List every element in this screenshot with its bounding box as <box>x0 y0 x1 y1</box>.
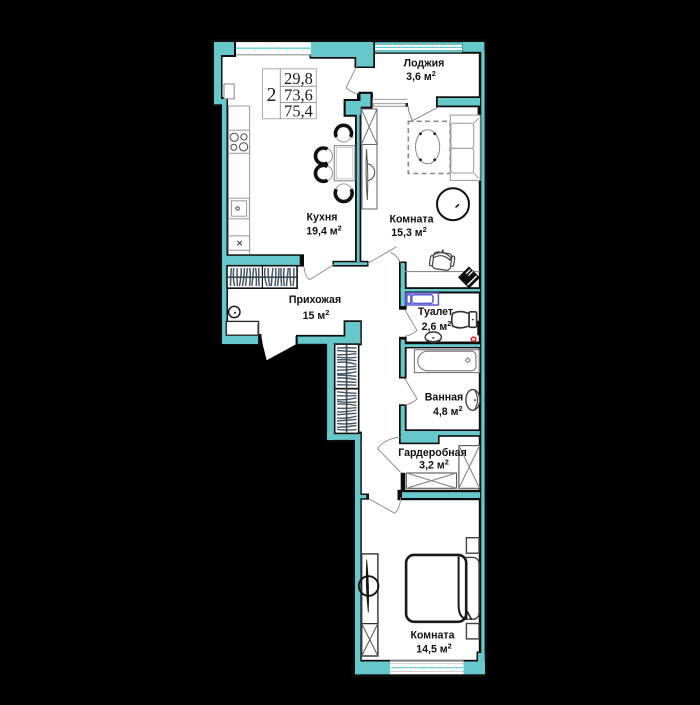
svg-text:Прихожая: Прихожая <box>289 294 341 306</box>
svg-text:2: 2 <box>267 85 277 106</box>
svg-text:19,4 м2: 19,4 м2 <box>306 223 342 237</box>
svg-text:15,3 м2: 15,3 м2 <box>391 225 427 239</box>
svg-text:Ванная: Ванная <box>425 391 463 403</box>
svg-text:75,4: 75,4 <box>284 102 313 121</box>
svg-text:Комната: Комната <box>410 629 454 641</box>
svg-text:3,6 м2: 3,6 м2 <box>406 69 436 83</box>
svg-text:Гардеробная: Гардеробная <box>398 447 467 459</box>
svg-text:3,2 м2: 3,2 м2 <box>419 457 449 471</box>
svg-text:Комната: Комната <box>389 214 433 226</box>
svg-text:Кухня: Кухня <box>307 212 338 224</box>
svg-text:14,5 м2: 14,5 м2 <box>416 642 452 656</box>
svg-text:4,8 м2: 4,8 м2 <box>433 404 463 418</box>
svg-text:2,6 м2: 2,6 м2 <box>422 319 452 333</box>
svg-text:Туалет: Туалет <box>418 306 453 318</box>
svg-text:Лоджия: Лоджия <box>404 58 445 70</box>
